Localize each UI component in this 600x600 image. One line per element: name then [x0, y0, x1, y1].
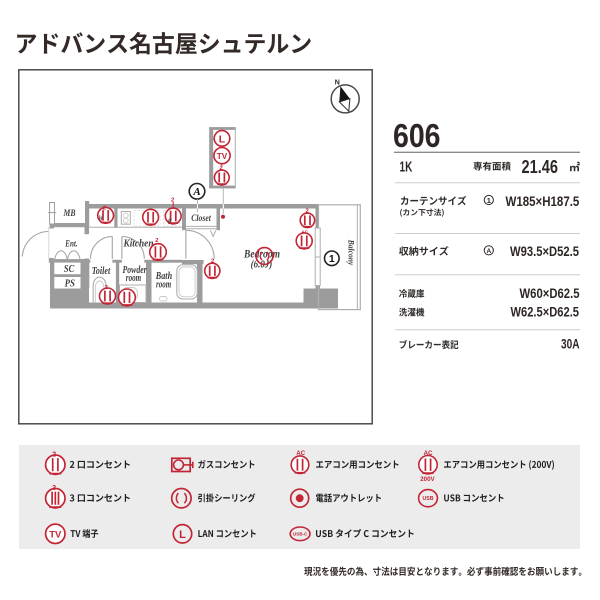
- svg-text:L: L: [219, 133, 226, 145]
- svg-text:1: 1: [329, 253, 335, 265]
- svg-text:Toilet: Toilet: [92, 266, 111, 277]
- svg-text:USB-C: USB-C: [293, 532, 308, 537]
- svg-text:(6.0J): (6.0J): [251, 260, 273, 271]
- svg-text:3: 3: [52, 485, 56, 492]
- svg-text:AC: AC: [301, 229, 308, 235]
- svg-text:1: 1: [487, 196, 491, 205]
- svg-text:AC: AC: [424, 450, 433, 457]
- svg-text:W62.5×D62.5: W62.5×D62.5: [511, 304, 580, 319]
- svg-text:N: N: [335, 80, 340, 87]
- svg-text:1K: 1K: [400, 159, 413, 175]
- svg-text:W93.5×D52.5: W93.5×D52.5: [510, 244, 579, 259]
- svg-text:W60×D62.5: W60×D62.5: [520, 286, 580, 301]
- svg-text:606: 606: [393, 117, 441, 154]
- svg-text:TV: TV: [217, 152, 228, 161]
- svg-text:PS: PS: [65, 279, 76, 290]
- svg-text:room: room: [126, 273, 142, 284]
- svg-text:A: A: [486, 248, 491, 255]
- svg-text:Bedroom: Bedroom: [243, 248, 280, 260]
- svg-text:200V: 200V: [420, 476, 435, 483]
- svg-text:room: room: [156, 279, 171, 290]
- svg-text:Kitchen: Kitchen: [123, 239, 154, 250]
- svg-text:g: g: [167, 216, 172, 224]
- svg-text:MB: MB: [63, 208, 76, 218]
- svg-text:AC: AC: [296, 450, 305, 457]
- svg-text:Balcony: Balcony: [347, 239, 357, 266]
- svg-text:W: W: [99, 214, 104, 222]
- svg-text:L: L: [179, 529, 186, 541]
- svg-text:W185×H187.5: W185×H187.5: [506, 194, 580, 209]
- svg-text:Ent.: Ent.: [65, 239, 78, 249]
- svg-text:SC: SC: [64, 264, 75, 275]
- svg-text:2: 2: [52, 452, 56, 459]
- svg-text:A: A: [192, 186, 200, 198]
- svg-text:TV: TV: [49, 529, 62, 540]
- svg-text:USB: USB: [423, 496, 434, 502]
- svg-text:Closet: Closet: [191, 214, 211, 224]
- svg-text:21.46: 21.46: [522, 157, 559, 177]
- svg-text:30A: 30A: [561, 337, 580, 352]
